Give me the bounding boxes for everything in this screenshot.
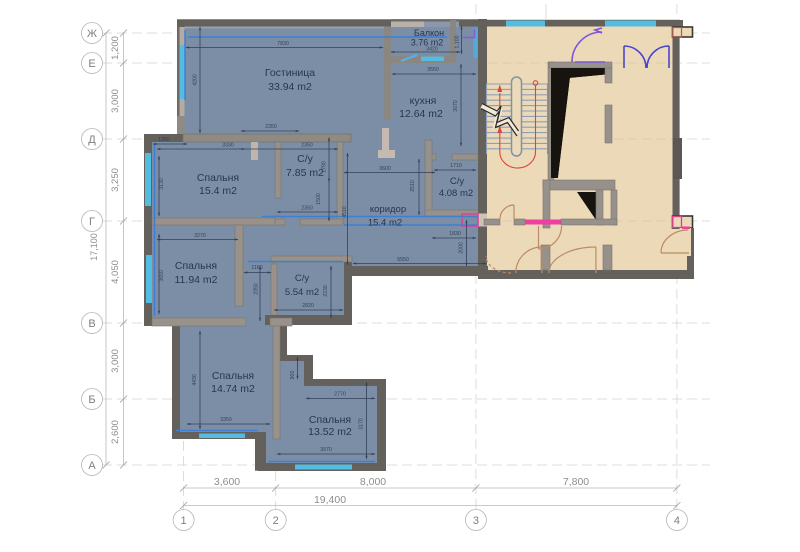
svg-text:11.94 m2: 11.94 m2 [175,274,218,286]
svg-text:В: В [88,318,95,330]
svg-text:3.76 m2: 3.76 m2 [411,38,444,48]
svg-text:1,200: 1,200 [110,36,121,60]
svg-text:С/у: С/у [297,153,314,165]
svg-text:3130: 3130 [159,178,165,190]
svg-text:1350: 1350 [158,137,170,143]
svg-text:3: 3 [473,515,479,527]
svg-text:5.54 m2: 5.54 m2 [285,287,319,298]
svg-text:1710: 1710 [450,163,462,169]
svg-text:С/у: С/у [295,273,310,284]
svg-text:7,800: 7,800 [563,476,589,488]
svg-text:2350: 2350 [254,283,260,295]
svg-text:4200: 4200 [193,74,199,86]
svg-text:5550: 5550 [397,257,409,263]
svg-text:2000: 2000 [459,242,465,254]
svg-text:7830: 7830 [277,41,289,47]
svg-text:Г: Г [89,216,95,228]
svg-text:13.52 m2: 13.52 m2 [308,426,352,438]
svg-text:Гостиница: Гостиница [265,67,315,79]
svg-text:2350: 2350 [265,124,277,130]
svg-text:Е: Е [88,58,95,70]
svg-text:Спальня: Спальня [309,414,351,426]
svg-text:2770: 2770 [334,392,346,398]
svg-text:2: 2 [273,515,279,527]
svg-text:7.85 m2: 7.85 m2 [286,167,324,179]
svg-text:8,000: 8,000 [360,476,386,488]
svg-text:3650: 3650 [159,270,165,282]
svg-text:1,100: 1,100 [455,35,461,48]
svg-text:15.4 m2: 15.4 m2 [368,218,402,229]
svg-text:3,000: 3,000 [110,89,121,113]
svg-text:3270: 3270 [194,233,206,239]
svg-text:Балкон: Балкон [414,28,444,38]
svg-text:3330: 3330 [222,143,234,149]
svg-text:кухня: кухня [410,95,437,107]
svg-text:900: 900 [290,371,296,380]
svg-text:17,100: 17,100 [89,233,99,261]
svg-text:1: 1 [181,515,187,527]
svg-text:Спальня: Спальня [175,260,217,272]
svg-text:3670: 3670 [453,100,459,112]
svg-text:2,600: 2,600 [110,420,121,444]
svg-text:3350: 3350 [220,417,232,423]
svg-text:Спальня: Спальня [212,370,254,382]
svg-text:4: 4 [674,515,680,527]
svg-text:3,250: 3,250 [110,168,121,192]
svg-text:3600: 3600 [379,166,391,172]
svg-text:12.64 m2: 12.64 m2 [399,108,443,120]
svg-text:Спальня: Спальня [197,172,239,184]
svg-text:4,050: 4,050 [110,260,121,284]
svg-text:коридор: коридор [370,204,406,215]
svg-text:3,000: 3,000 [110,349,121,373]
svg-text:3550: 3550 [427,67,439,73]
svg-text:Ж: Ж [87,28,97,40]
svg-text:14.74 m2: 14.74 m2 [211,383,255,395]
svg-text:С/у: С/у [450,176,465,187]
svg-text:19,400: 19,400 [314,494,346,506]
svg-text:4.08 m2: 4.08 m2 [439,188,473,199]
svg-text:4430: 4430 [192,374,198,386]
svg-text:33.94 m2: 33.94 m2 [268,81,312,93]
svg-text:2230: 2230 [323,285,329,297]
svg-text:Б: Б [88,394,95,406]
svg-text:А: А [88,460,96,472]
svg-text:Д: Д [88,134,96,146]
svg-text:3,600: 3,600 [214,476,240,488]
svg-text:4510: 4510 [342,206,348,218]
svg-text:1160: 1160 [251,265,262,271]
svg-text:1500: 1500 [316,193,322,205]
svg-text:15.4 m2: 15.4 m2 [199,185,237,197]
svg-text:3970: 3970 [320,447,332,453]
svg-text:2820: 2820 [302,303,314,309]
svg-text:2510: 2510 [410,180,416,192]
svg-text:2350: 2350 [301,206,313,212]
svg-text:1830: 1830 [449,231,461,237]
svg-text:2350: 2350 [301,143,313,149]
svg-text:3170: 3170 [359,418,365,430]
